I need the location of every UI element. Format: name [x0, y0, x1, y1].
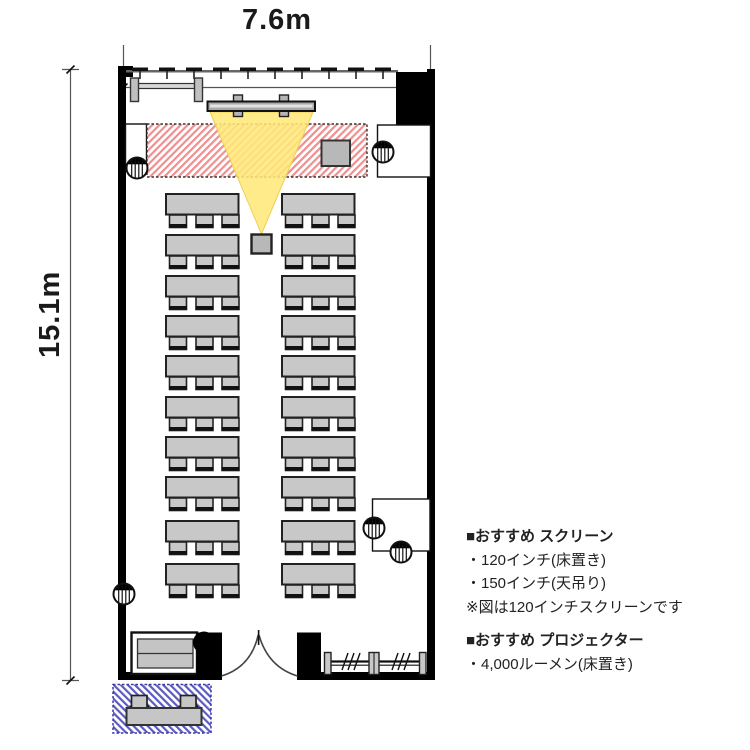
window-mullion-tick [382, 71, 384, 79]
table [282, 316, 355, 337]
chair-backrest [169, 551, 187, 555]
table-with-chairs [166, 397, 240, 431]
window-frame-dash [348, 68, 364, 72]
chair-backrest [338, 507, 356, 511]
chair-backrest [312, 467, 330, 471]
table-with-chairs [166, 316, 240, 350]
chair-backrest [169, 427, 187, 431]
table [166, 397, 239, 418]
table [166, 521, 239, 542]
table [282, 477, 355, 498]
whiteboard [131, 78, 203, 102]
chair-backrest [196, 507, 214, 511]
table [166, 437, 239, 458]
table-with-chairs [282, 276, 356, 310]
chair-backrest [285, 224, 303, 228]
coat-rack [325, 653, 427, 675]
table-with-chairs [282, 564, 356, 598]
chair-backrest [222, 427, 240, 431]
window-frame-dash [159, 68, 175, 72]
chair-backrest [222, 507, 240, 511]
window-frame-dash [294, 68, 310, 72]
table-with-chairs [282, 316, 356, 350]
chair-backrest [169, 346, 187, 350]
chair-backrest [312, 386, 330, 390]
chair-backrest [222, 265, 240, 269]
chair-backrest [312, 224, 330, 228]
chair-backrest [312, 551, 330, 555]
chair-backrest [312, 346, 330, 350]
chair-backrest [196, 306, 214, 310]
chair-backrest [338, 306, 356, 310]
chair-backrest [338, 551, 356, 555]
speaker-icon [373, 142, 394, 163]
table [166, 477, 239, 498]
table [282, 437, 355, 458]
chair-backrest [338, 467, 356, 471]
table-with-chairs [282, 356, 356, 390]
chair-backrest [312, 427, 330, 431]
window-mullion-tick [139, 71, 141, 79]
chair-backrest [338, 427, 356, 431]
chair-backrest [312, 306, 330, 310]
table [166, 276, 239, 297]
chair-backrest [285, 427, 303, 431]
table [282, 276, 355, 297]
sofa [132, 633, 198, 675]
chair-backrest [169, 594, 187, 598]
chair-backrest [312, 507, 330, 511]
chair-backrest [169, 467, 187, 471]
chair-backrest [169, 265, 187, 269]
projector-recommendation-heading: ■おすすめ プロジェクター [466, 629, 746, 653]
window-frame-dash [267, 68, 283, 72]
pillar-door-right [297, 633, 321, 679]
recommendation-notes: ■おすすめ スクリーン ・120インチ(床置き) ・150インチ(天吊り) ※図… [466, 525, 746, 676]
window-mullion-tick [166, 71, 168, 79]
chair-backrest [338, 224, 356, 228]
chair-backrest [222, 224, 240, 228]
screen-recommendation-item: ・150インチ(天吊り) [466, 572, 746, 596]
window-frame-dash [186, 68, 202, 72]
speaker-icon [364, 518, 385, 539]
window-frame-dash [213, 68, 229, 72]
window-frame-dash [240, 68, 256, 72]
table [282, 397, 355, 418]
chair-backrest [169, 386, 187, 390]
pillar-door-left [197, 633, 223, 678]
window-mullion-tick [274, 71, 276, 79]
table-with-chairs [166, 437, 240, 471]
chair-backrest [169, 224, 187, 228]
table [166, 194, 239, 215]
table [282, 194, 355, 215]
window-mullion-tick [247, 71, 249, 79]
table [166, 316, 239, 337]
window-frame-dash [375, 68, 391, 72]
chair-backrest [196, 346, 214, 350]
projector [252, 235, 272, 254]
table-with-chairs [166, 276, 240, 310]
screen-recommendation-heading: ■おすすめ スクリーン [466, 525, 746, 549]
table [282, 235, 355, 256]
table-with-chairs [282, 521, 356, 555]
table-with-chairs [282, 477, 356, 511]
chair-backrest [169, 507, 187, 511]
chair-backrest [196, 224, 214, 228]
speaker-icon [391, 542, 412, 563]
chair-backrest [338, 594, 356, 598]
speaker-icon [127, 158, 148, 179]
chair-backrest [222, 551, 240, 555]
chair-backrest [285, 306, 303, 310]
podium [322, 141, 351, 167]
chair-backrest [169, 306, 187, 310]
window-frame-dash [321, 68, 337, 72]
table [166, 235, 239, 256]
dimension-line-left [62, 66, 79, 685]
chair-backrest [338, 346, 356, 350]
depth-dimension-label: 15.1m [23, 273, 78, 358]
table-with-chairs [282, 397, 356, 431]
chair-backrest [285, 265, 303, 269]
table-with-chairs [282, 194, 356, 228]
chair-backrest [196, 467, 214, 471]
table-with-chairs [166, 194, 240, 228]
chair-backrest [285, 551, 303, 555]
chair-backrest [196, 427, 214, 431]
table [166, 564, 239, 585]
chair-backrest [285, 507, 303, 511]
chair-backrest [338, 386, 356, 390]
speaker-icon [114, 584, 135, 605]
chair-backrest [285, 346, 303, 350]
double-door [222, 630, 298, 676]
window-mullion-tick [328, 71, 330, 79]
chair-backrest [285, 386, 303, 390]
width-dimension-label: 7.6m [177, 4, 377, 37]
table-with-chairs [282, 437, 356, 471]
chair-backrest [196, 551, 214, 555]
table-with-chairs [166, 235, 240, 269]
chair-backrest [285, 594, 303, 598]
screen-recommendation-note: ※図は120インチスクリーンです [466, 596, 746, 620]
projector-recommendation-item: ・4,000ルーメン(床置き) [466, 653, 746, 677]
window-frame-dash [132, 68, 148, 72]
table [282, 521, 355, 542]
window-mullion-tick [355, 71, 357, 79]
screen-recommendation-item: ・120インチ(床置き) [466, 549, 746, 573]
chair-backrest [285, 467, 303, 471]
chair-backrest [222, 386, 240, 390]
table-with-chairs [166, 356, 240, 390]
chair-backrest [312, 594, 330, 598]
chair-backrest [196, 265, 214, 269]
table [282, 356, 355, 377]
table [166, 356, 239, 377]
table-with-chairs [166, 477, 240, 511]
chair-backrest [196, 594, 214, 598]
table-with-chairs [166, 521, 240, 555]
window-mullions [132, 68, 391, 80]
table [282, 564, 355, 585]
chair-backrest [222, 306, 240, 310]
window-mullion-tick [301, 71, 303, 79]
window-mullion-tick [220, 71, 222, 79]
chair-backrest [222, 594, 240, 598]
table-with-chairs [166, 564, 240, 598]
chair-backrest [222, 467, 240, 471]
chair-backrest [222, 346, 240, 350]
chair-backrest [312, 265, 330, 269]
table-with-chairs [282, 235, 356, 269]
chair-backrest [338, 265, 356, 269]
chair-backrest [196, 386, 214, 390]
pillar-top-right [396, 72, 435, 125]
